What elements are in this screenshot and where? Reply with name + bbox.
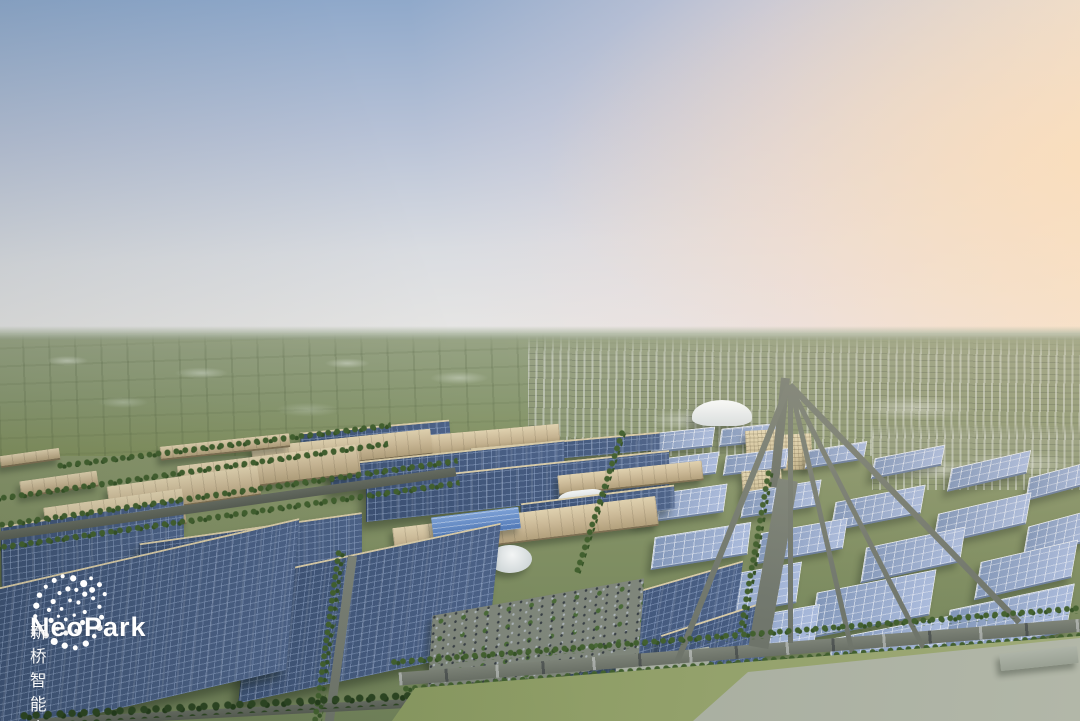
building-tent: [692, 400, 752, 426]
sky-layer: [0, 0, 1080, 340]
road: [788, 385, 793, 643]
aerial-rendering: NeoPark 新桥智能电动汽车产业园: [0, 0, 1080, 721]
brand-subtitle-cn: 新桥智能电动汽车产业园: [30, 619, 49, 721]
